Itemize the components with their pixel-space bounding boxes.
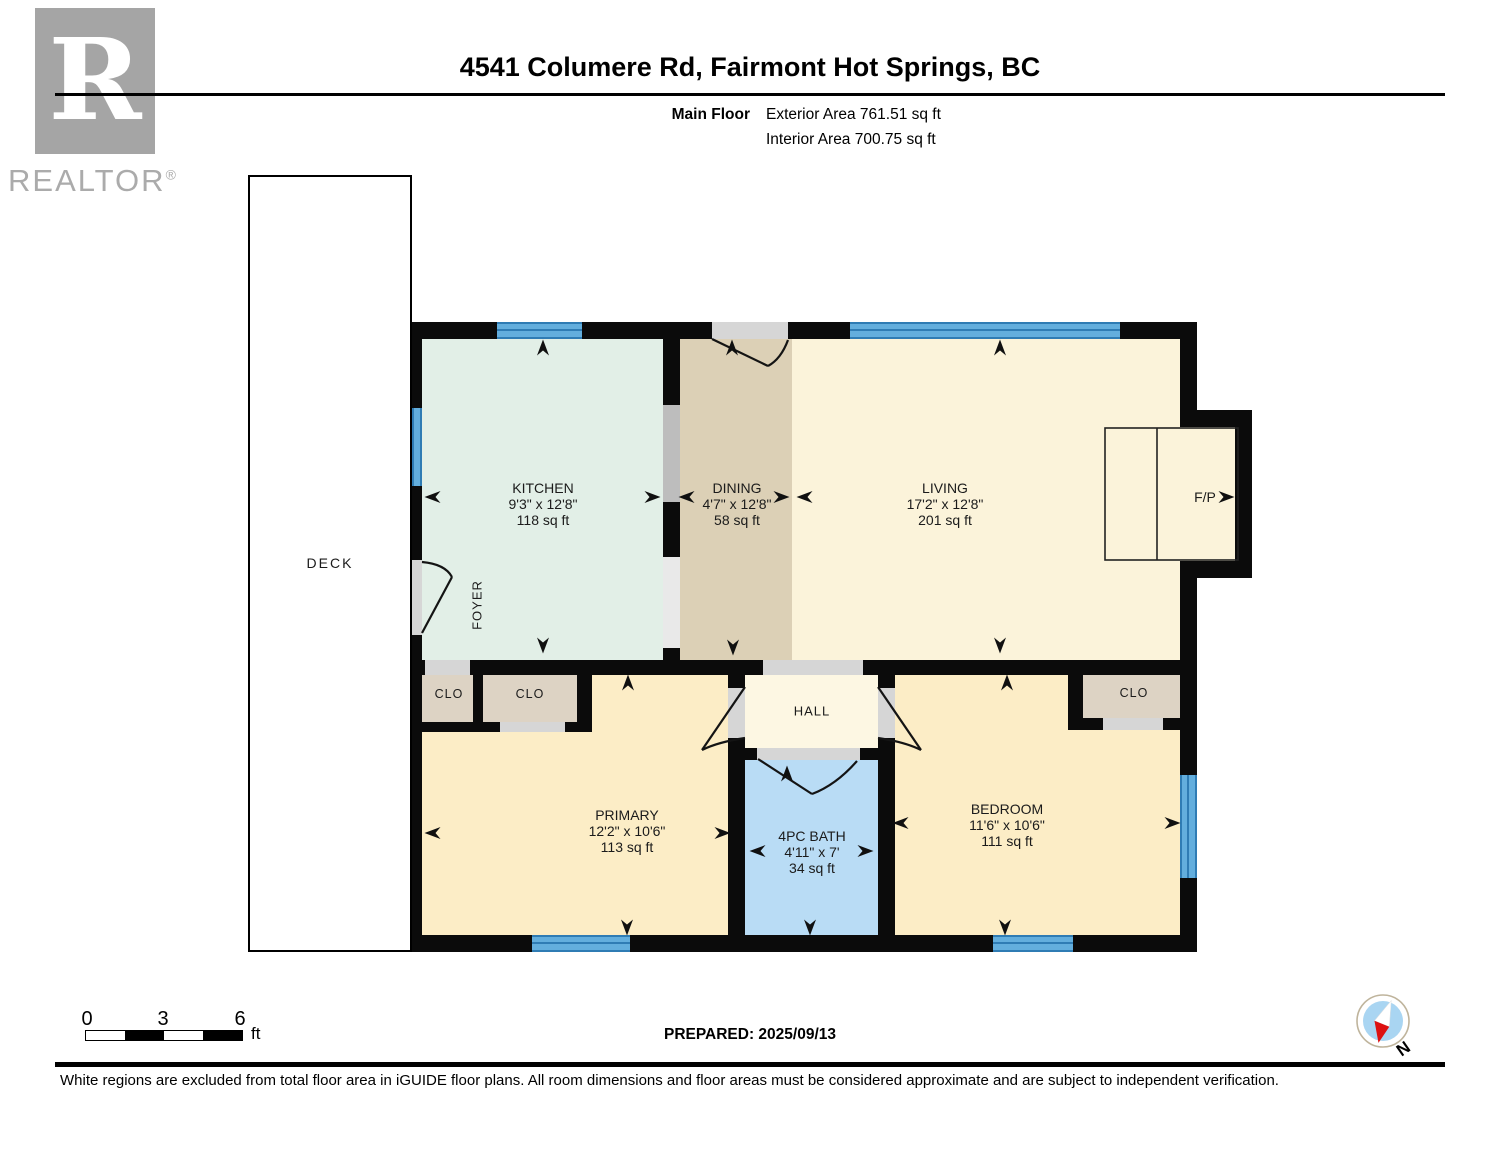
hall-right-door-opening	[878, 688, 895, 738]
room-name: KITCHEN	[509, 480, 578, 496]
hall-left-door-opening	[728, 688, 745, 738]
floor-plan-page: R REALTOR® 4541 Columere Rd, Fairmont Ho…	[0, 0, 1500, 1159]
realtor-logo-icon: R	[35, 8, 155, 154]
cased-opening	[663, 557, 680, 648]
room-area: 34 sq ft	[778, 860, 845, 876]
room-label-primary: PRIMARY 12'2" x 10'6" 113 sq ft	[589, 807, 666, 855]
wall	[663, 339, 680, 405]
header-divider	[55, 93, 1445, 96]
closet-label: CLO	[435, 687, 464, 701]
room-dims: 4'11" x 7'	[778, 844, 845, 860]
wall	[473, 660, 483, 722]
room-name: 4PC BATH	[778, 828, 845, 844]
room-name: LIVING	[907, 480, 984, 496]
bath-door-opening	[757, 748, 860, 760]
room-label-living: LIVING 17'2" x 12'8" 201 sq ft	[907, 480, 984, 528]
room-dims: 12'2" x 10'6"	[589, 823, 666, 839]
wall	[663, 648, 680, 660]
room-name: DINING	[703, 480, 772, 496]
disclaimer-text: White regions are excluded from total fl…	[60, 1072, 1460, 1089]
closet3-opening	[1103, 718, 1163, 730]
prepared-date: PREPARED: 2025/09/13	[0, 1026, 1500, 1044]
closet2-opening	[500, 722, 565, 732]
page-title: 4541 Columere Rd, Fairmont Hot Springs, …	[0, 52, 1500, 83]
cased-opening	[663, 405, 680, 502]
room-area: 201 sq ft	[907, 512, 984, 528]
window	[850, 322, 1120, 339]
room-label-dining: DINING 4'7" x 12'8" 58 sq ft	[703, 480, 772, 528]
room-area: 58 sq ft	[703, 512, 772, 528]
realtor-logo-letter: R	[48, 25, 141, 137]
room-label-bath: 4PC BATH 4'11" x 7' 34 sq ft	[778, 828, 845, 876]
closet-label: CLO	[516, 687, 545, 701]
room-label-kitchen: KITCHEN 9'3" x 12'8" 118 sq ft	[509, 480, 578, 528]
room-area: 118 sq ft	[509, 512, 578, 528]
hall-opening	[763, 660, 863, 675]
wall	[405, 935, 1197, 952]
closet-label: CLO	[1120, 686, 1149, 700]
fireplace-label: F/P	[1194, 489, 1216, 505]
entry-door-opening	[712, 322, 788, 339]
deck-label: DECK	[307, 555, 354, 571]
room-area: 113 sq ft	[589, 839, 666, 855]
hall-label: HALL	[794, 704, 831, 719]
window	[497, 322, 582, 339]
living-floor	[792, 339, 1180, 660]
footer-divider	[55, 1062, 1445, 1067]
realtor-wordmark: REALTOR®	[8, 163, 178, 199]
room-name: BEDROOM	[969, 801, 1045, 817]
wall	[663, 502, 680, 557]
room-label-bedroom: BEDROOM 11'6" x 10'6" 111 sq ft	[969, 801, 1045, 849]
wall	[1180, 561, 1197, 952]
room-dims: 9'3" x 12'8"	[509, 496, 578, 512]
closet1-opening	[425, 660, 470, 675]
floor-label: Main Floor	[520, 106, 750, 124]
registered-mark: ®	[166, 167, 178, 183]
room-dims: 4'7" x 12'8"	[703, 496, 772, 512]
room-dims: 11'6" x 10'6"	[969, 817, 1045, 833]
room-area: 111 sq ft	[969, 833, 1045, 849]
window	[532, 935, 630, 952]
room-dims: 17'2" x 12'8"	[907, 496, 984, 512]
window	[1180, 775, 1197, 878]
window	[993, 935, 1073, 952]
foyer-label: FOYER	[470, 580, 485, 630]
interior-area: Interior Area 700.75 sq ft	[766, 131, 936, 149]
wall	[1180, 322, 1197, 427]
room-name: PRIMARY	[589, 807, 666, 823]
exterior-area: Exterior Area 761.51 sq ft	[766, 106, 941, 124]
